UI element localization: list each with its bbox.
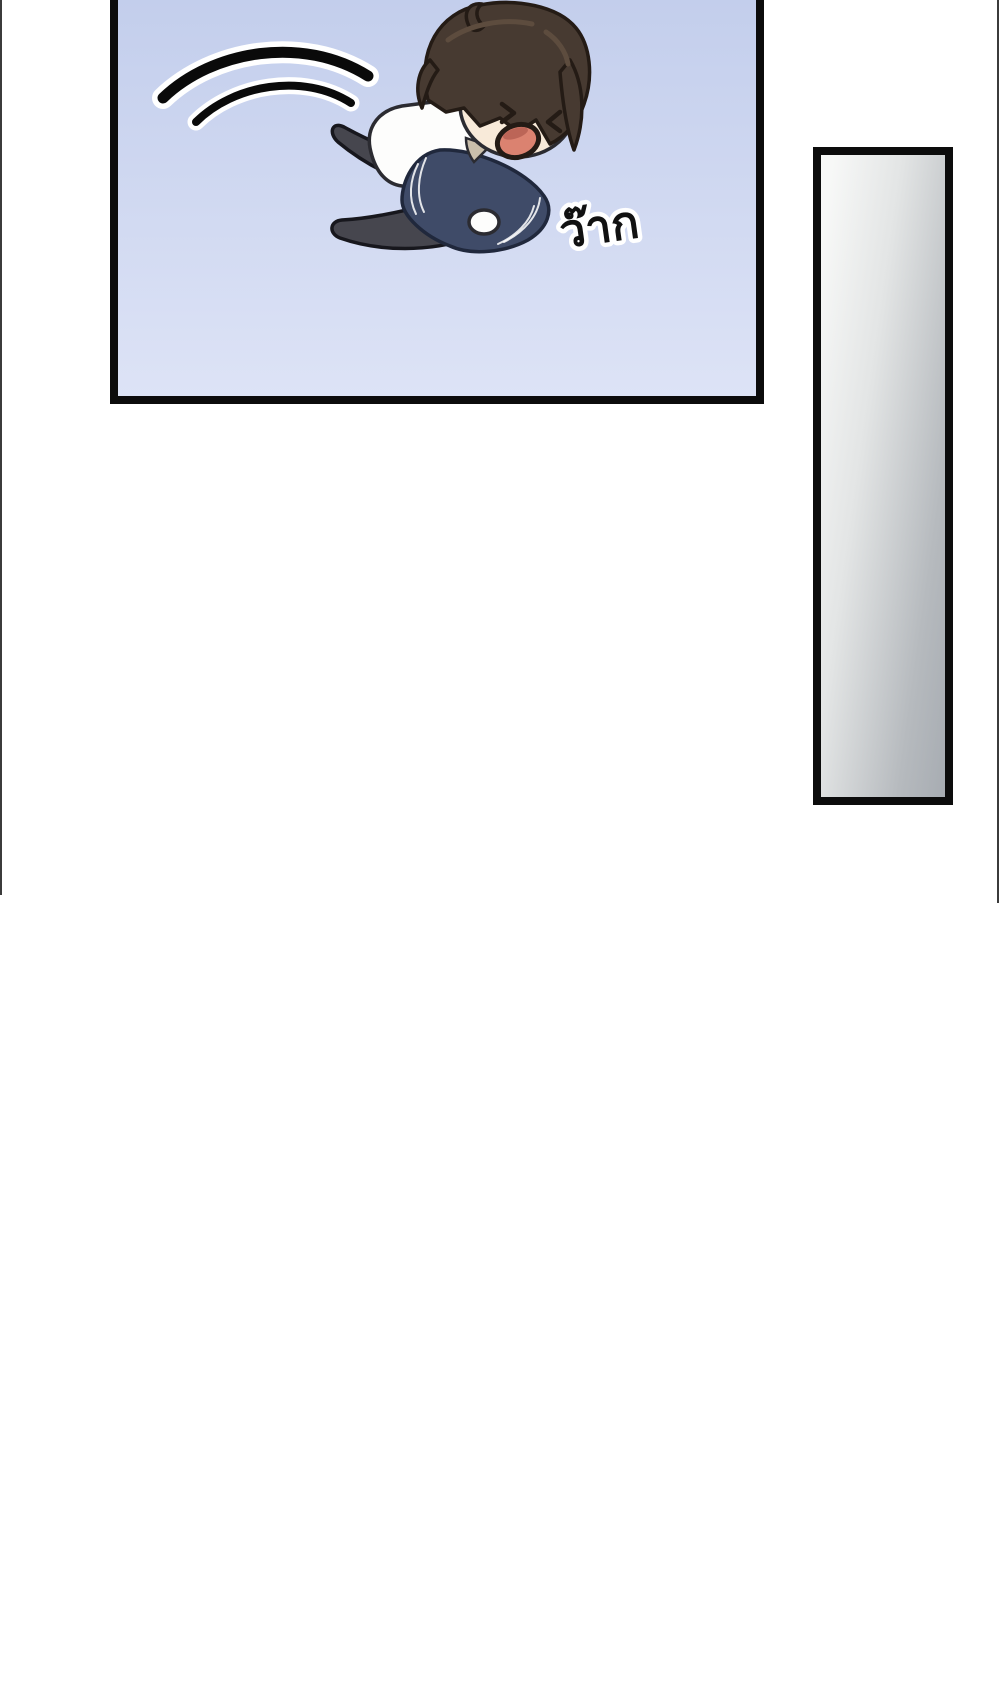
panel-artwork: ว๊าก [118, 0, 756, 396]
comic-panel-side [813, 147, 953, 805]
flying-character [332, 3, 590, 252]
right-edge-line [997, 0, 999, 903]
character-hand [469, 210, 499, 234]
speed-lines-icon [163, 52, 368, 122]
left-edge-line [0, 0, 2, 895]
comic-panel-main: ว๊าก [110, 0, 764, 404]
sfx-scream-text: ว๊าก [556, 194, 642, 259]
